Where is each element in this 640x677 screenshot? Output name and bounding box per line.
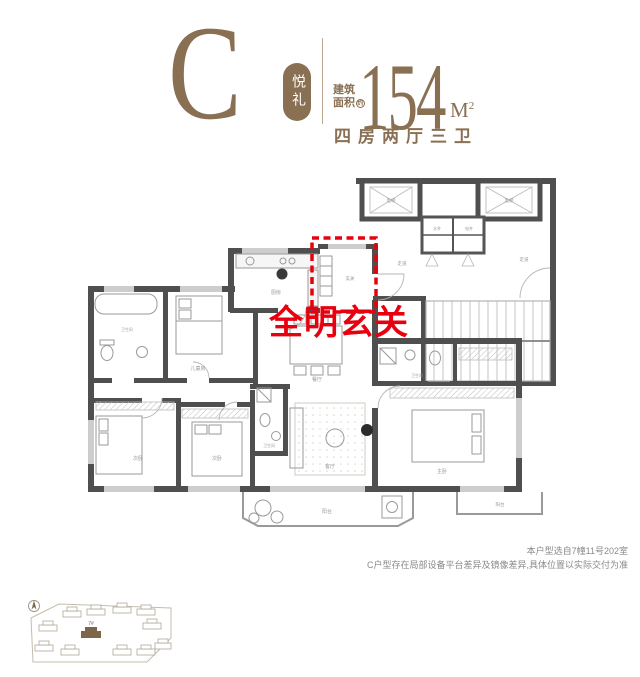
bath-master-label: 卫生间 <box>411 373 423 378</box>
note-line1: 本户型选自7幢11号202室 <box>367 544 628 558</box>
bedroom-a-label: 次卧 <box>133 455 143 462</box>
layout-text: 四房两厅三卫 <box>334 122 478 147</box>
elevator-right-label: 电梯 <box>505 197 514 204</box>
disclaimer-notes: 本户型选自7幢11号202室 C户型存在局部设备平台差异及镜像差异,具体位置以实… <box>367 544 628 572</box>
unit-name-text: 悦礼 <box>287 74 307 110</box>
dining-label: 餐厅 <box>312 376 322 383</box>
corridor-left-label: 走道 <box>398 260 407 267</box>
kids-label: 儿童房 <box>190 365 205 372</box>
balcony-master-label: 阳台 <box>496 501 505 508</box>
kitchen-label: 厨房 <box>271 289 281 296</box>
highlight-dashed-box <box>312 238 376 312</box>
shaft-elec-label: 电井 <box>465 225 473 231</box>
site-highlight-building: 7# <box>81 621 101 638</box>
corridor-right-label: 走道 <box>520 256 529 263</box>
site-buildings <box>35 603 171 655</box>
floorplan-page: C 悦礼 建筑 面积约 154 M2 四房两厅三卫 <box>0 0 640 677</box>
site-plan: 7# <box>25 592 175 670</box>
bath-second-label: 卫生间 <box>263 443 275 448</box>
bedroom-b-label: 次卧 <box>212 455 222 462</box>
header: C 悦礼 建筑 面积约 154 M2 四房两厅三卫 <box>168 20 498 150</box>
entry-label: 玄关 <box>346 275 355 282</box>
shaft-water-label: 水井 <box>433 225 441 231</box>
unit-name-badge: 悦礼 <box>283 63 311 121</box>
site-highlight-label: 7# <box>88 621 94 627</box>
highlight-callout: 全明玄关 <box>268 303 409 342</box>
furniture <box>95 254 542 526</box>
floorplan-drawing: 电梯 电梯 水井 电井 走道 走道 <box>80 168 570 548</box>
living-label: 客厅 <box>325 463 335 470</box>
header-divider <box>322 38 323 124</box>
balcony-main-label: 阳台 <box>322 508 332 515</box>
area-unit: M2 <box>450 98 474 123</box>
compass-icon <box>29 601 40 612</box>
unit-letter: C <box>168 6 242 141</box>
elevator-left-label: 电梯 <box>387 197 396 204</box>
master-label: 主卧 <box>437 468 447 475</box>
bath-main-label: 卫生间 <box>121 327 133 332</box>
note-line2: C户型存在局部设备平台差异及镜像差异,具体位置以实际交付为准 <box>367 558 628 572</box>
